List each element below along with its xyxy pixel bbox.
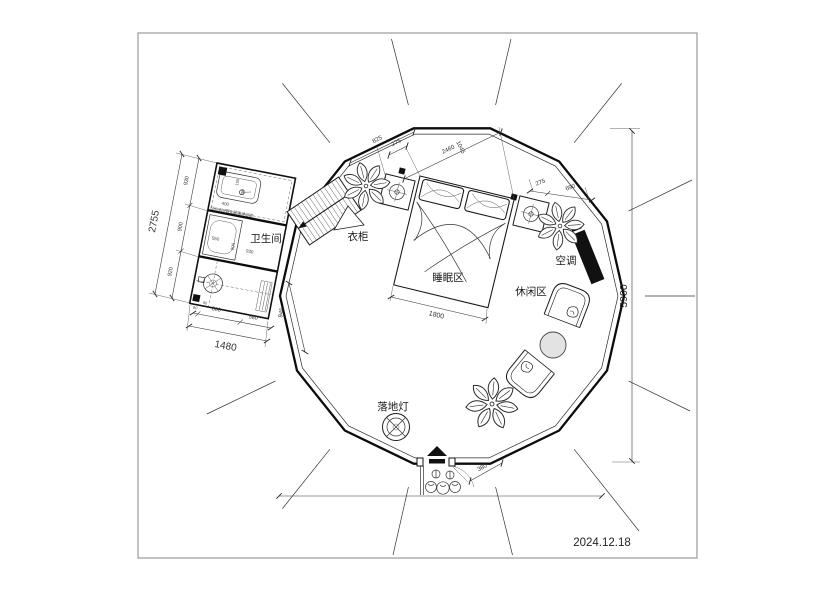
duct-block-bottom [192,294,200,302]
dim-line-2460 [404,132,501,179]
dim-1045: 1045 [454,140,466,155]
door-post-right [449,458,455,466]
air-conditioner-label: 空调 [556,254,577,267]
door-post-left [417,458,423,466]
floor-lamp-symbol [383,414,410,441]
dim-line-1480 [189,326,267,341]
dim-920: 920 [167,267,175,277]
dim-5900: 5900 [618,284,630,308]
dim-930: 930 [183,176,191,186]
floor-plan-svg: 400 150 700 550x900钢化玻璃淋浴房 550 900 930 9… [0,0,837,592]
duct-block-top [218,167,227,176]
coffee-table [540,332,566,358]
leisure-area-label: 休闲区 [515,285,547,298]
floor-lamp-label: 落地灯 [377,400,409,413]
dim-1480: 1480 [214,339,238,354]
dim-90: 90 [193,305,199,311]
dim-2755: 2755 [147,209,162,233]
entry-plants [426,470,461,494]
dim-800: 800 [211,306,221,314]
dim-275-right: 275 [535,178,547,187]
dim-line-275-left [389,146,407,155]
bathroom-label: 卫生间 [250,232,282,245]
entry-arrow-icon [427,446,447,464]
floor-plan-page: 400 150 700 550x900钢化玻璃淋浴房 550 900 930 9… [0,0,837,592]
armchair-top [544,280,592,327]
wardrobe-label: 衣柜 [348,230,369,243]
dim-1800: 1800 [428,310,445,320]
dim-900: 900 [177,222,185,232]
dim-580: 580 [248,314,258,322]
sleeping-area-label: 睡眠区 [432,271,464,284]
wall-block-left [398,167,405,174]
ac-unit [568,221,604,284]
date-text: 2024.12.18 [573,537,631,549]
dim-2460: 2460 [441,144,456,156]
